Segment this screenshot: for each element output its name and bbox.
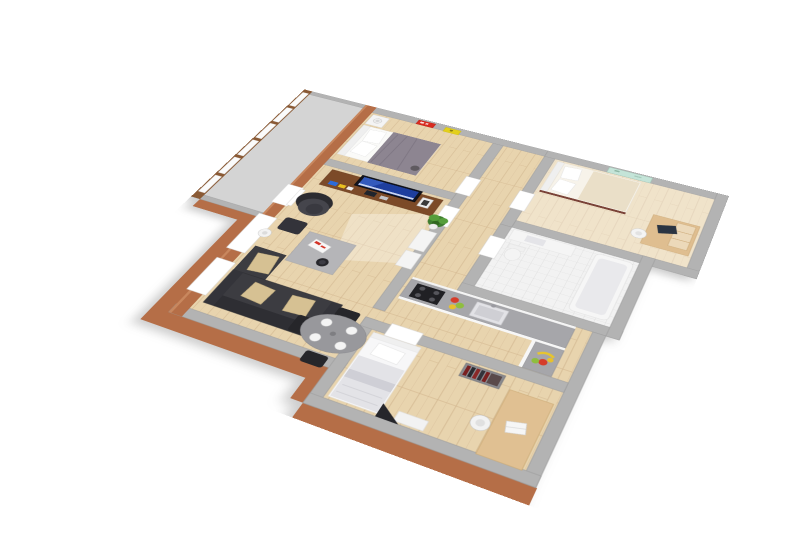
apartment-floor-plan <box>51 89 729 531</box>
apartment-render-canvas <box>0 0 800 534</box>
laptop <box>657 225 677 234</box>
floor-plan-3d-wrapper <box>51 89 729 531</box>
building <box>51 89 729 531</box>
laptop-white <box>505 421 527 435</box>
